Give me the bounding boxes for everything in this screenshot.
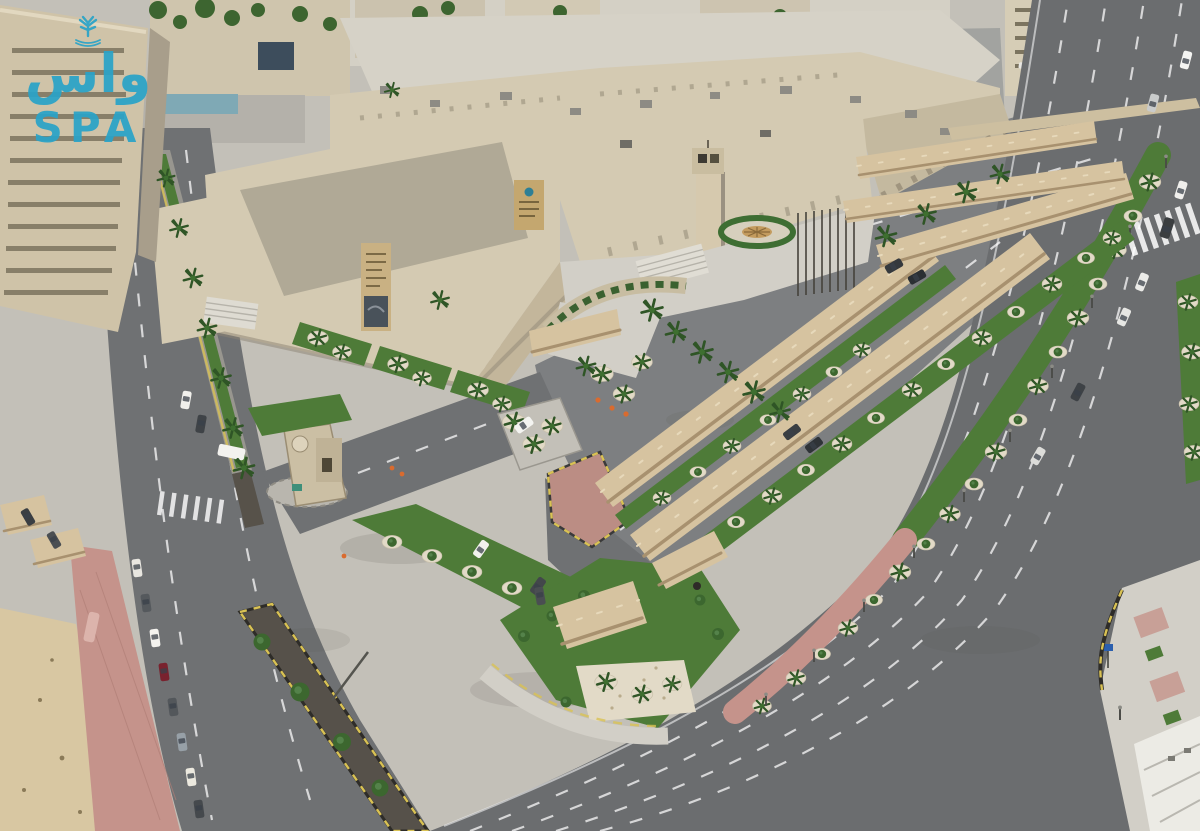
watermark-latin: SPA — [33, 103, 144, 152]
street-sign — [1104, 644, 1113, 651]
banner — [361, 243, 391, 331]
tire — [693, 582, 701, 590]
entrance-sign — [514, 180, 544, 230]
blue-wall — [258, 42, 294, 70]
watermark-arabic: واس — [25, 42, 152, 105]
aerial-photo: واس SPA — [0, 0, 1200, 831]
aerial-photo-canvas: واس SPA — [0, 0, 1200, 831]
emblem-plaza — [721, 218, 793, 246]
plaque — [292, 484, 302, 491]
